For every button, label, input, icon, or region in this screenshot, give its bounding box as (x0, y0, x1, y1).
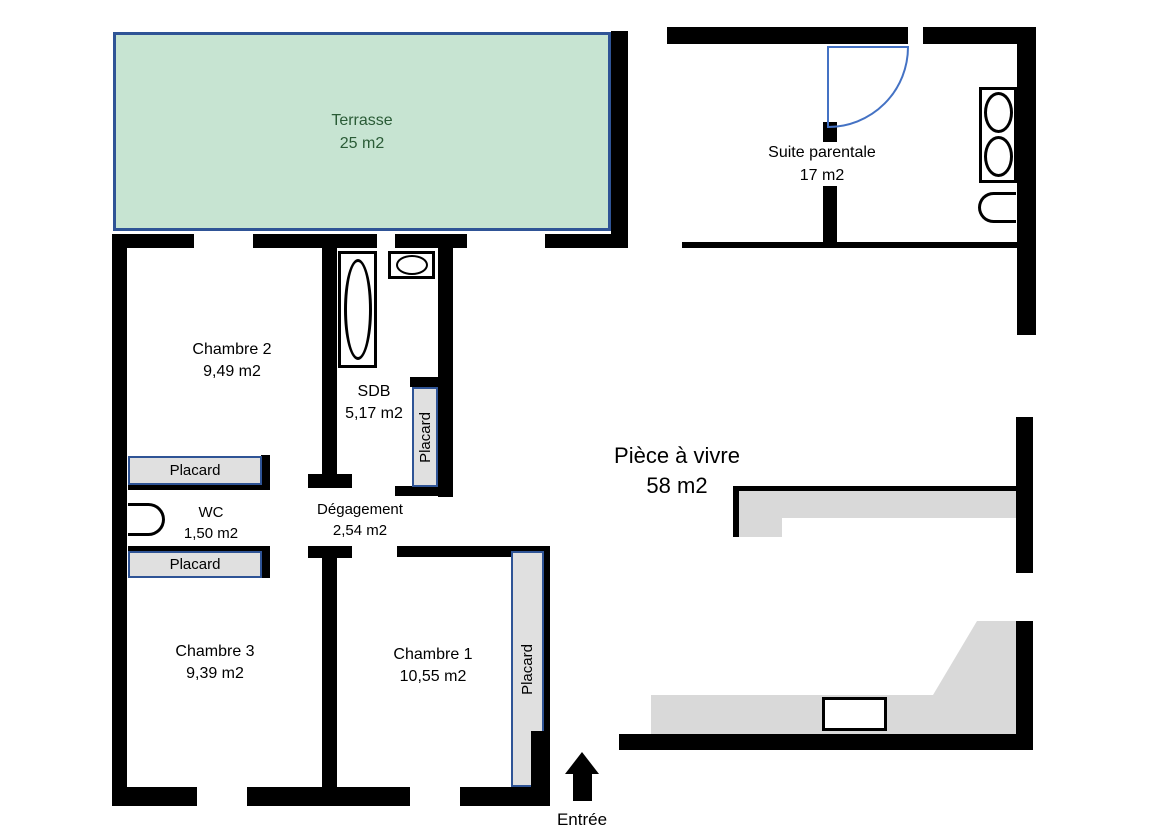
wall-suite-divider-lower (823, 186, 837, 242)
sdb-sink-basin (396, 255, 428, 275)
closet-chambre2: Placard (128, 456, 262, 485)
room-area: 9,39 m2 (115, 663, 315, 685)
entry-arrow-shaft (573, 773, 592, 801)
floor-plan: Terrasse 25 m2 Placard (0, 0, 1157, 838)
suite-vanity-basin-1 (984, 92, 1013, 133)
wall-top-row-4 (545, 234, 628, 248)
wall-ch3-ch1-head (308, 546, 352, 558)
room-area: 10,55 m2 (333, 666, 533, 688)
wall-ch2-sdb-foot (308, 474, 352, 488)
room-name: Dégagement (260, 499, 460, 520)
wall-suite-right (1017, 29, 1036, 335)
wall-ch1-right-thick-overlay (531, 731, 550, 806)
chambre1-label: Chambre 1 10,55 m2 (333, 644, 533, 688)
wall-top-row-3 (395, 234, 467, 248)
bathtub-basin (344, 259, 372, 360)
room-area: 58 m2 (577, 471, 777, 501)
wall-top-row-2 (253, 234, 377, 248)
room-terrasse: Terrasse 25 m2 (113, 32, 611, 231)
wall-wc-top-stub (261, 455, 270, 490)
room-area: 17 m2 (722, 164, 922, 187)
entry-arrow-icon (565, 752, 599, 774)
closet-chambre3: Placard (128, 551, 262, 578)
wall-terrace-east (611, 31, 628, 248)
terrasse-area: 25 m2 (340, 132, 384, 155)
wall-sdb-right (438, 234, 453, 497)
closet-chambre2-label: Placard (170, 462, 221, 479)
room-name: Pièce à vivre (577, 441, 777, 471)
chambre2-label: Chambre 2 9,49 m2 (132, 339, 332, 383)
wall-wc-bottom-stub (261, 546, 270, 578)
room-area: 9,49 m2 (132, 361, 332, 383)
room-name: Chambre 1 (333, 644, 533, 666)
degagement-label: Dégagement 2,54 m2 (260, 499, 460, 541)
piece-a-vivre-label: Pièce à vivre 58 m2 (577, 441, 777, 501)
entry-label: Entrée (512, 810, 652, 830)
room-name: Suite parentale (722, 141, 922, 164)
room-name: SDB (274, 381, 474, 403)
room-area: 5,17 m2 (274, 403, 474, 425)
closet-chambre3-label: Placard (170, 556, 221, 573)
room-name: Chambre 3 (115, 641, 315, 663)
wall-sdb-bottom (395, 486, 443, 496)
sdb-label: SDB 5,17 m2 (274, 381, 474, 425)
terrasse-name: Terrasse (331, 109, 392, 132)
kitchen-sink (822, 697, 887, 731)
wall-living-bottom (619, 734, 1033, 750)
suite-toilet (978, 192, 1016, 223)
wall-suite-top-left (667, 27, 908, 44)
wall-bottom-1 (112, 787, 197, 806)
kitchen-counter-upper-step (739, 518, 782, 537)
wall-east-mid (1016, 417, 1033, 573)
wall-east-low (1016, 621, 1033, 750)
room-name: Chambre 2 (132, 339, 332, 361)
wall-suite-bottom (682, 242, 1017, 248)
kitchen-counter-upper (739, 491, 1016, 518)
door-swing-icon (826, 45, 910, 129)
room-area: 2,54 m2 (260, 520, 460, 541)
suite-vanity-basin-2 (984, 136, 1013, 177)
suite-parentale-label: Suite parentale 17 m2 (722, 141, 922, 187)
chambre3-label: Chambre 3 9,39 m2 (115, 641, 315, 685)
